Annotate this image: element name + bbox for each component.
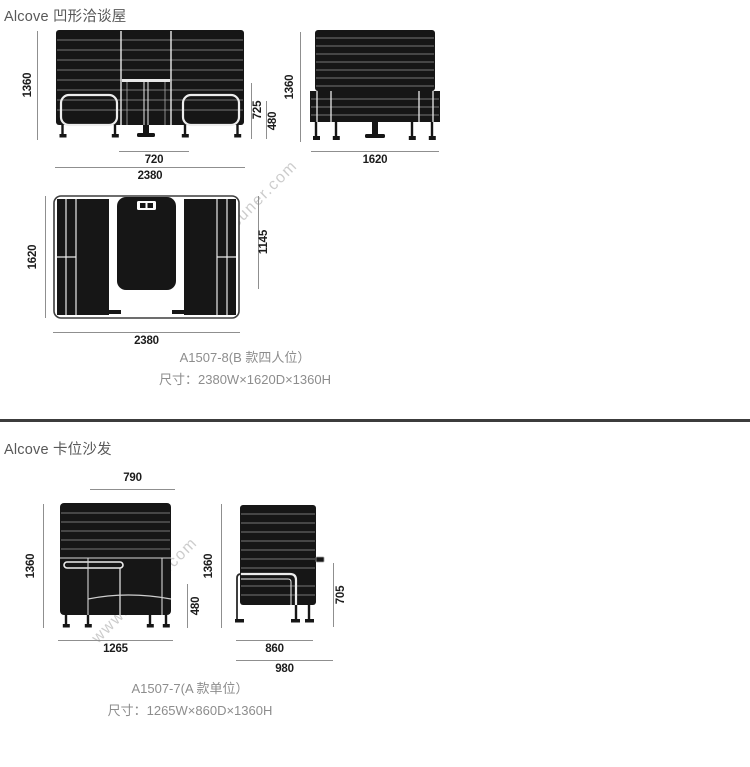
dimension-label-table-height: 725	[252, 90, 264, 130]
dimension-label-width: 2380	[55, 170, 245, 182]
model-caption: A1507-7(A 款单位）	[70, 681, 310, 696]
dimension-line	[311, 151, 439, 152]
dimension-line	[58, 640, 173, 641]
dimension-label-depth: 860	[236, 643, 313, 655]
dimension-label-seat-height: 480	[267, 101, 279, 141]
dimension-label-table-width: 720	[119, 154, 189, 166]
booth-front-elevation-drawing	[55, 30, 245, 140]
booth-side-elevation-drawing	[310, 30, 440, 145]
dimension-label-overall-depth: 980	[236, 663, 333, 675]
dimension-label-inner-depth: 1145	[258, 222, 270, 262]
dimension-line	[119, 151, 189, 152]
dimension-line	[236, 660, 333, 661]
dimension-label-height: 1360	[284, 67, 296, 107]
dimension-label-back-width: 790	[90, 472, 175, 484]
model-caption: A1507-8(B 款四人位）	[125, 350, 365, 365]
dimension-label-height: 1360	[22, 65, 34, 105]
booth-plan-view-drawing	[53, 195, 240, 319]
size-caption: 尺寸：1265W×860D×1360H	[70, 703, 310, 718]
dimension-label-width: 1265	[58, 643, 173, 655]
dimension-label-height: 1360	[203, 546, 215, 586]
dimension-line	[221, 504, 222, 628]
dimension-line	[43, 504, 44, 628]
dimension-label-arm-height: 705	[335, 575, 347, 615]
section-title-sofa: Alcove 卡位沙发	[4, 438, 112, 459]
size-caption: 尺寸：2380W×1620D×1360H	[125, 372, 365, 387]
dimension-line	[236, 640, 313, 641]
dimension-line	[333, 563, 334, 627]
section-title-booth: Alcove 凹形洽谈屋	[4, 5, 126, 26]
dimension-line	[90, 489, 175, 490]
sofa-side-elevation-drawing	[235, 505, 335, 627]
section-divider	[0, 419, 750, 422]
dimension-label-seat-height: 480	[190, 586, 202, 626]
dimension-line	[300, 32, 301, 142]
dimension-line	[37, 31, 38, 140]
dimension-label-width: 2380	[53, 335, 240, 347]
dimension-line	[55, 167, 245, 168]
dimension-line	[45, 196, 46, 318]
dimension-line	[53, 332, 240, 333]
dimension-label-depth: 1620	[311, 154, 439, 166]
dimension-label-height: 1360	[25, 546, 37, 586]
dimension-line	[187, 584, 188, 628]
sofa-front-elevation-drawing	[58, 503, 173, 628]
power-module-icon	[137, 201, 156, 210]
dimension-label-depth: 1620	[27, 237, 39, 277]
spec-sheet-page: Alcove 凹形洽谈屋 www.nsuner.com 1360 725 480…	[0, 0, 750, 767]
